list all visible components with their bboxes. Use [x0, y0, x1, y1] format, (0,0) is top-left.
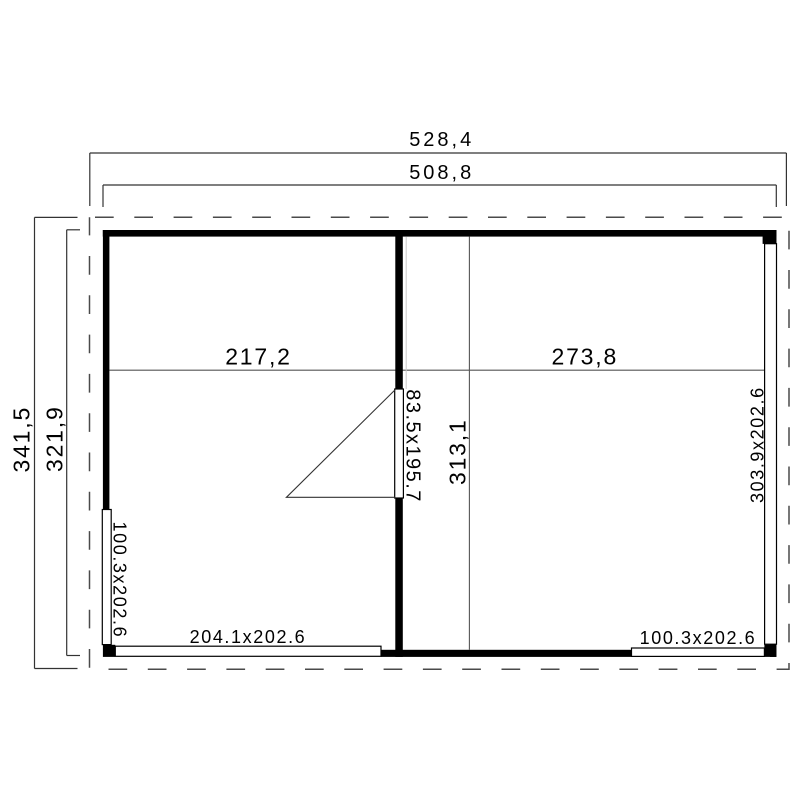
svg-text:100.3x202.6: 100.3x202.6 — [110, 522, 130, 639]
svg-text:528,4: 528,4 — [409, 129, 474, 151]
svg-text:204.1x202.6: 204.1x202.6 — [190, 627, 307, 647]
svg-text:100.3x202.6: 100.3x202.6 — [640, 628, 757, 648]
svg-text:217,2: 217,2 — [225, 344, 292, 370]
svg-text:508,8: 508,8 — [409, 162, 474, 184]
svg-text:273,8: 273,8 — [552, 344, 619, 370]
svg-text:303.9x202.6: 303.9x202.6 — [748, 386, 768, 503]
svg-text:313,1: 313,1 — [445, 418, 471, 485]
svg-text:83.5x195.7: 83.5x195.7 — [401, 389, 423, 502]
svg-text:341,5: 341,5 — [8, 406, 34, 473]
svg-text:321,9: 321,9 — [42, 405, 68, 472]
